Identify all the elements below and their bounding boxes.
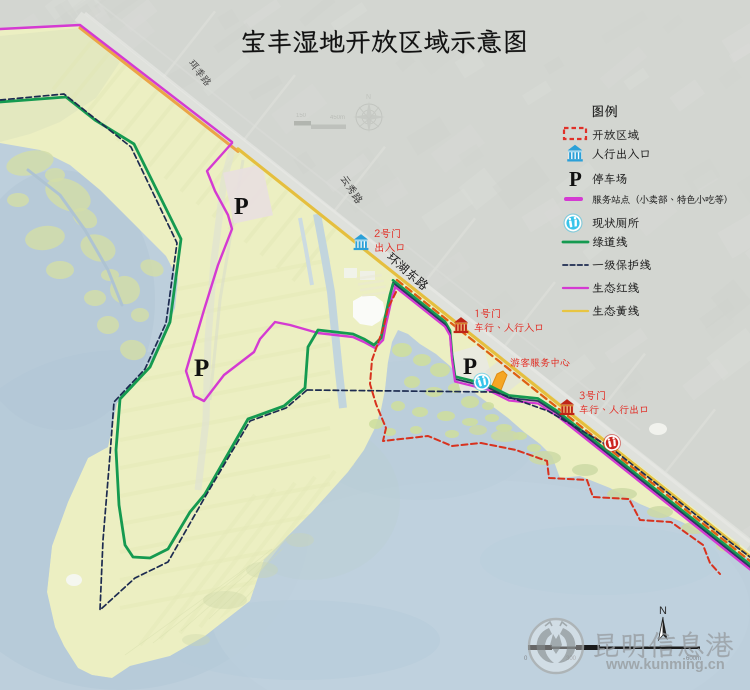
svg-text:P: P (569, 167, 582, 191)
svg-text:450m: 450m (330, 115, 345, 121)
svg-text:150: 150 (296, 113, 307, 119)
svg-text:P: P (234, 194, 249, 220)
svg-text:N: N (366, 94, 371, 101)
svg-text:www.kunming.cn: www.kunming.cn (605, 657, 725, 673)
svg-text:P: P (194, 355, 209, 382)
svg-text:P: P (463, 354, 477, 379)
svg-text:N: N (659, 605, 667, 617)
